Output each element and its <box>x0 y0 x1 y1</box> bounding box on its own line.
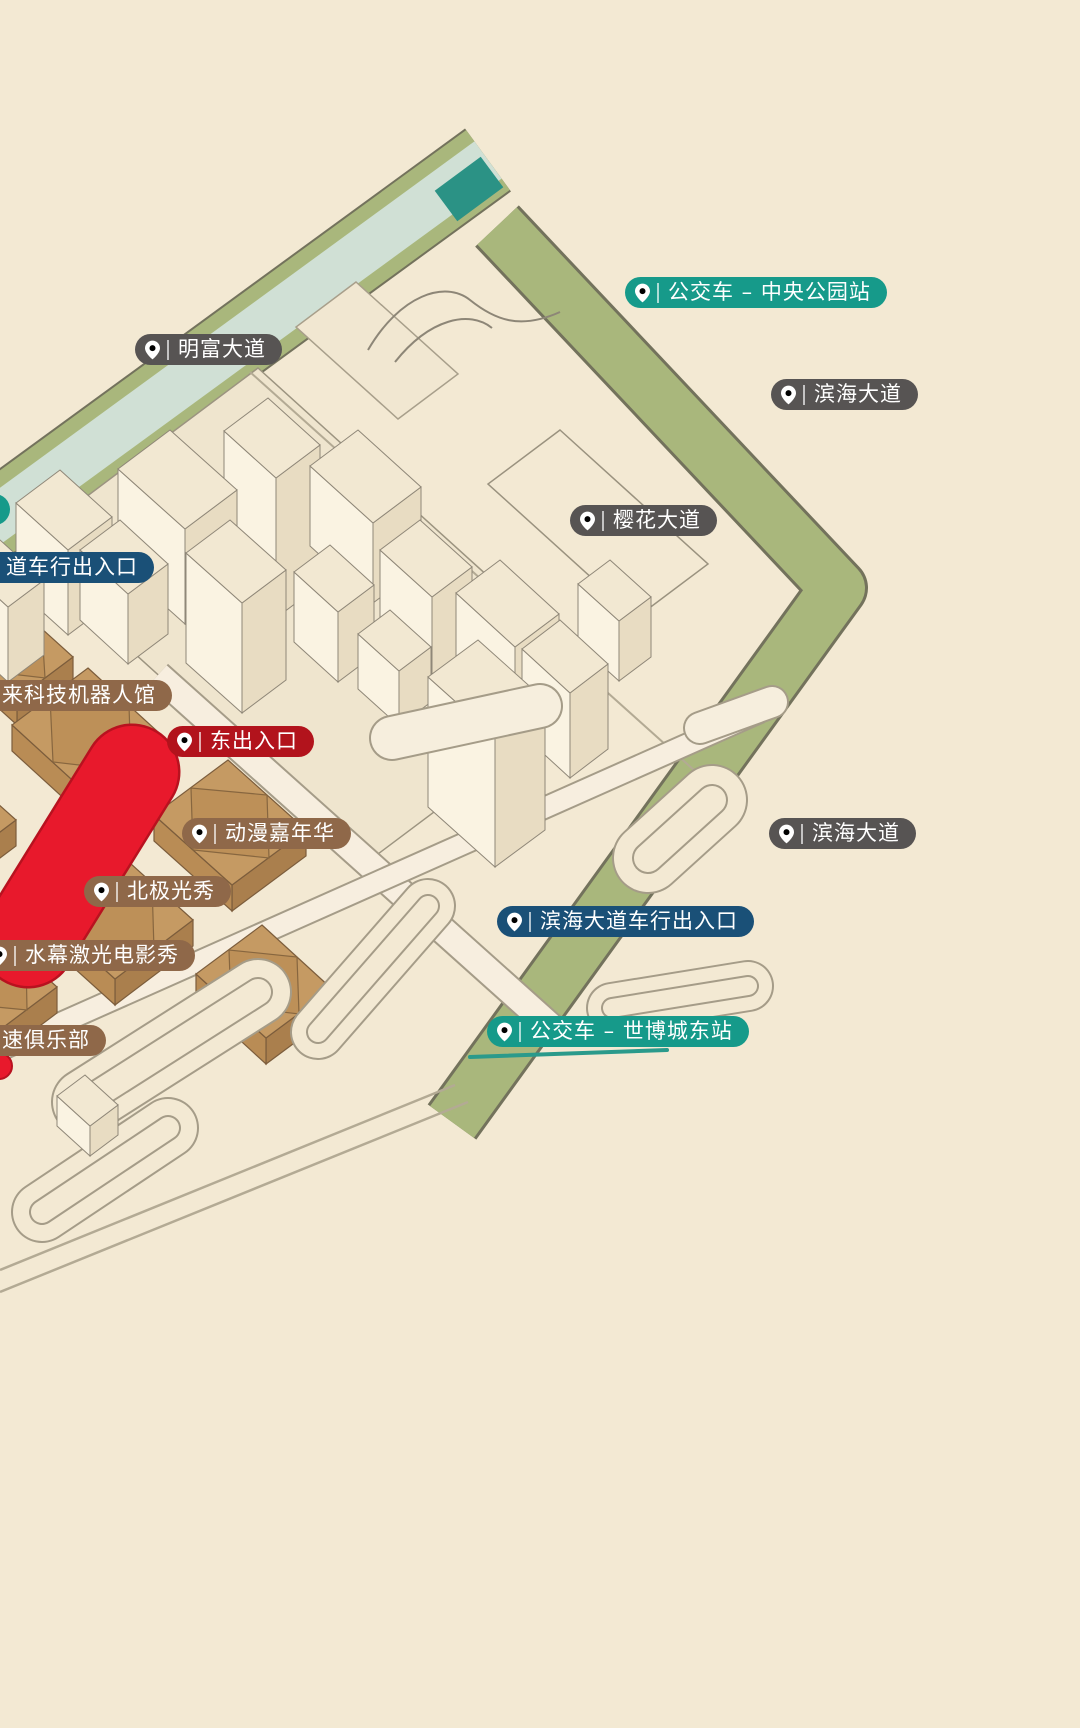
location-pin-icon <box>507 912 522 932</box>
label-divider <box>803 385 805 405</box>
map-label-road-binhai-avenue-north[interactable]: 滨海大道 <box>771 379 918 410</box>
label-text: 公交车 – 中央公园站 <box>668 277 871 308</box>
label-text: 公交车 – 世博城东站 <box>530 1016 733 1047</box>
label-divider <box>657 283 659 303</box>
label-divider <box>14 946 16 966</box>
label-text: 滨海大道 <box>812 818 900 849</box>
label-divider <box>167 340 169 360</box>
label-text: 道车行出入口 <box>6 552 138 583</box>
map-label-exit-east[interactable]: 东出入口 <box>167 726 314 757</box>
location-pin-icon <box>781 385 796 405</box>
map-label-road-binhai-avenue-east[interactable]: 滨海大道 <box>769 818 916 849</box>
map-label-bus-stop-central-park[interactable]: 公交车 – 中央公园站 <box>625 277 887 308</box>
map-label-attraction-speed-club[interactable]: 速俱乐部 <box>0 1025 106 1056</box>
label-text: 动漫嘉年华 <box>225 818 335 849</box>
label-divider <box>116 882 118 902</box>
location-pin-icon <box>0 946 7 966</box>
map-label-exit-binhai-vehicle[interactable]: 滨海大道车行出入口 <box>497 906 754 937</box>
map-label-pavilion-future-tech-robot[interactable]: 来科技机器人馆 <box>0 680 172 711</box>
map-label-attraction-water-laser-movie-show[interactable]: 水幕激光电影秀 <box>0 940 195 971</box>
location-pin-icon <box>145 340 160 360</box>
map-label-attraction-aurora-show[interactable]: 北极光秀 <box>84 876 231 907</box>
map-label-road-mingfu-avenue[interactable]: 明富大道 <box>135 334 282 365</box>
label-text: 北极光秀 <box>127 876 215 907</box>
label-text: 水幕激光电影秀 <box>25 940 179 971</box>
location-pin-icon <box>497 1022 512 1042</box>
label-text: 明富大道 <box>178 334 266 365</box>
location-pin-icon <box>192 824 207 844</box>
map-label-bus-stop-expo-city-east[interactable]: 公交车 – 世博城东站 <box>487 1016 749 1047</box>
map-label-attraction-anime-carnival[interactable]: 动漫嘉年华 <box>182 818 351 849</box>
labels-layer: 公交车 – 中央公园站 明富大道 滨海大道 <box>0 0 1080 1728</box>
label-divider <box>801 824 803 844</box>
label-text: 樱花大道 <box>613 505 701 536</box>
label-text: 东出入口 <box>210 726 298 757</box>
label-text: 滨海大道车行出入口 <box>540 906 738 937</box>
map-label-road-yinghua-avenue[interactable]: 樱花大道 <box>570 505 717 536</box>
map-label-bus-stop-partial[interactable] <box>0 494 10 525</box>
label-text: 滨海大道 <box>814 379 902 410</box>
label-divider <box>602 511 604 531</box>
park-map-screen: 公交车 – 中央公园站 明富大道 滨海大道 <box>0 0 1080 1728</box>
label-divider <box>529 912 531 932</box>
label-divider <box>199 732 201 752</box>
location-pin-icon <box>94 882 109 902</box>
label-divider <box>214 824 216 844</box>
label-text: 速俱乐部 <box>2 1025 90 1056</box>
label-divider <box>519 1022 521 1042</box>
location-pin-icon <box>779 824 794 844</box>
map-label-exit-vehicle-northwest[interactable]: 道车行出入口 <box>0 552 154 583</box>
location-pin-icon <box>177 732 192 752</box>
location-pin-icon <box>580 511 595 531</box>
label-text: 来科技机器人馆 <box>2 680 156 711</box>
location-pin-icon <box>635 283 650 303</box>
